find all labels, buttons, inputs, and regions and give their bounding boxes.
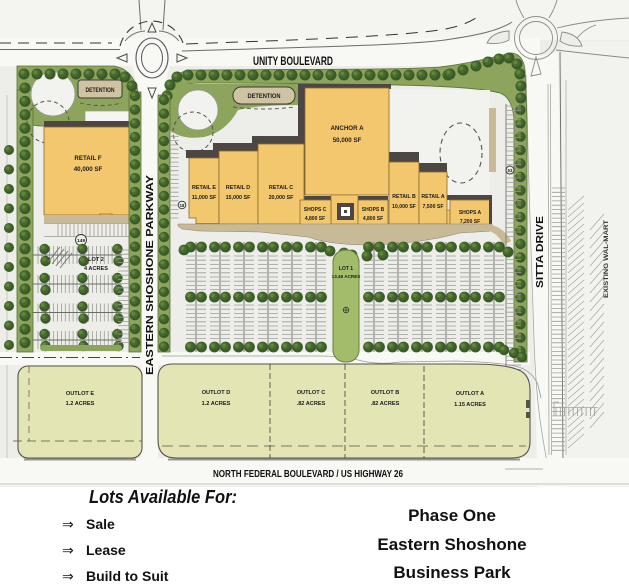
svg-text:SHOPS B: SHOPS B	[362, 207, 385, 213]
svg-text:EXISTING WAL-MART: EXISTING WAL-MART	[603, 219, 610, 298]
svg-text:149: 149	[77, 238, 85, 244]
svg-text:RETAIL B: RETAIL B	[392, 194, 416, 200]
svg-text:EASTERN SHOSHONE PARKWAY: EASTERN SHOSHONE PARKWAY	[144, 175, 156, 375]
svg-text:15,000 SF: 15,000 SF	[226, 195, 252, 201]
svg-text:7,500 SF: 7,500 SF	[422, 204, 443, 210]
svg-text:1.2 ACRES: 1.2 ACRES	[66, 401, 95, 407]
svg-text:20,000 SF: 20,000 SF	[269, 195, 295, 201]
svg-text:OUTLOT D: OUTLOT D	[202, 390, 231, 396]
svg-text:RETAIL D: RETAIL D	[226, 185, 250, 191]
svg-text:NORTH FEDERAL BOULEVARD / US H: NORTH FEDERAL BOULEVARD / US HIGHWAY 26	[213, 469, 403, 480]
svg-text:RETAIL E: RETAIL E	[192, 185, 216, 191]
svg-text:LOT 1: LOT 1	[339, 266, 353, 272]
svg-text:1.15 ACRES: 1.15 ACRES	[454, 402, 486, 408]
svg-text:⇒: ⇒	[62, 516, 74, 532]
svg-text:4,800 SF: 4,800 SF	[363, 216, 383, 222]
svg-text:Sale: Sale	[86, 516, 115, 532]
svg-text:50,000 SF: 50,000 SF	[333, 137, 362, 144]
svg-text:Eastern Shoshone: Eastern Shoshone	[377, 535, 526, 554]
svg-text:DETENTION: DETENTION	[86, 88, 115, 94]
svg-text:⇒: ⇒	[62, 568, 74, 584]
svg-text:11,000 SF: 11,000 SF	[192, 195, 217, 201]
svg-text:RETAIL F: RETAIL F	[74, 155, 101, 162]
svg-text:4 ACRES: 4 ACRES	[84, 266, 108, 272]
svg-text:Business Park: Business Park	[393, 563, 511, 582]
svg-text:Lots Available For:: Lots Available For:	[89, 487, 237, 507]
svg-text:Phase One: Phase One	[408, 506, 496, 525]
svg-text:10,000 SF: 10,000 SF	[392, 204, 416, 210]
svg-text:13.46 ACRES: 13.46 ACRES	[332, 274, 361, 279]
svg-text:OUTLOT C: OUTLOT C	[297, 390, 326, 396]
svg-text:18: 18	[180, 203, 185, 208]
svg-text:DETENTION: DETENTION	[248, 94, 281, 100]
svg-text:⇒: ⇒	[62, 542, 74, 558]
svg-text:SHOPS A: SHOPS A	[459, 210, 482, 216]
svg-text:OUTLOT B: OUTLOT B	[371, 390, 400, 396]
svg-text:OUTLOT A: OUTLOT A	[456, 391, 484, 397]
svg-text:OUTLOT E: OUTLOT E	[66, 391, 95, 397]
svg-text:SHOPS C: SHOPS C	[304, 207, 327, 213]
svg-text:40,000 SF: 40,000 SF	[74, 166, 103, 173]
svg-text:UNITY BOULEVARD: UNITY BOULEVARD	[253, 56, 333, 68]
svg-text:Lease: Lease	[86, 542, 126, 558]
svg-text:ANCHOR A: ANCHOR A	[330, 125, 364, 132]
svg-text:.82 ACRES: .82 ACRES	[371, 401, 400, 407]
svg-text:.82 ACRES: .82 ACRES	[297, 401, 326, 407]
svg-text:LOT 2: LOT 2	[88, 257, 104, 263]
svg-text:SITTA DRIVE: SITTA DRIVE	[534, 216, 546, 288]
svg-text:4,800 SF: 4,800 SF	[305, 216, 325, 222]
svg-text:RETAIL C: RETAIL C	[269, 185, 293, 191]
svg-text:53: 53	[508, 168, 513, 173]
svg-text:1.2 ACRES: 1.2 ACRES	[202, 401, 231, 407]
svg-text:Build to Suit: Build to Suit	[86, 568, 169, 584]
svg-text:RETAIL A: RETAIL A	[421, 194, 444, 200]
